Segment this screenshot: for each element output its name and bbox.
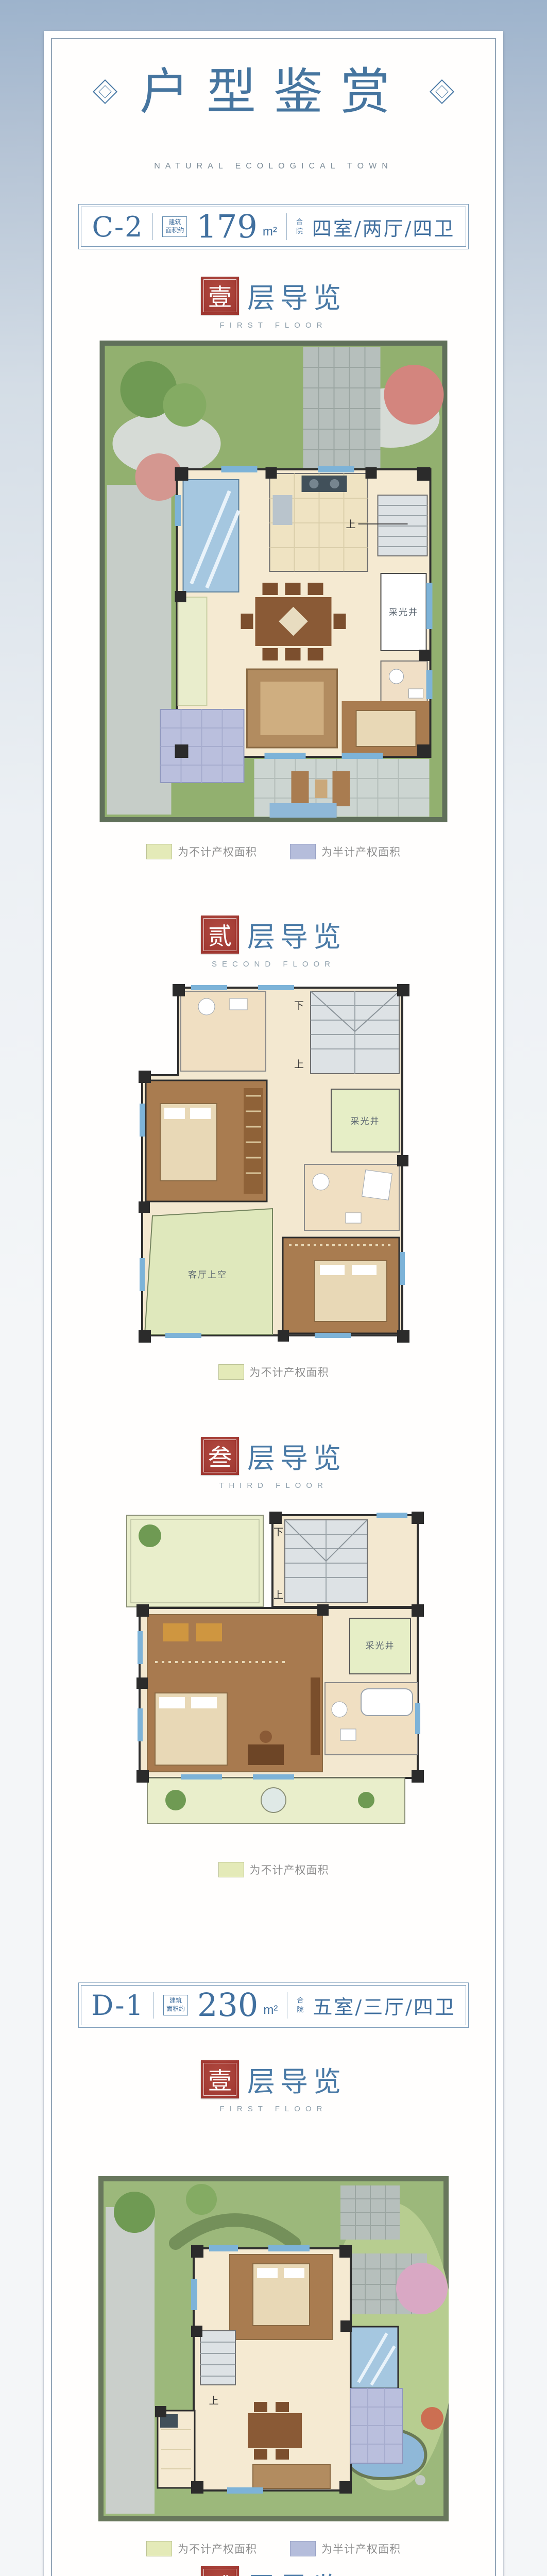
legend-c2-2: 为不计产权面积 xyxy=(52,1364,495,1380)
legend-c2-1: 为不计产权面积 为半计产权面积 xyxy=(52,844,495,859)
legend-item: 为半计产权面积 xyxy=(290,844,401,859)
divider xyxy=(287,1992,287,2019)
legend-item: 为不计产权面积 xyxy=(146,2541,257,2556)
diamond-icon xyxy=(430,79,454,104)
floor-plan-c2-3: 下 上 采光井 xyxy=(119,1507,428,1832)
area-unit: m² xyxy=(263,2003,278,2018)
stairs-up-label: 上 xyxy=(294,1059,304,1070)
area-prefix-box: 建筑 面积约 xyxy=(162,216,187,236)
floor-badge: 贰 xyxy=(201,2566,239,2576)
unit-category: 合 院 xyxy=(296,217,303,235)
light-well-label: 采光井 xyxy=(366,1641,395,1651)
floor-badge: 贰 xyxy=(201,916,239,954)
floor-title: 层导览 xyxy=(247,275,346,316)
page-subtitle: NATURAL ECOLOGICAL TOWN xyxy=(52,162,495,171)
stairs-up-label: 上 xyxy=(209,2395,218,2406)
legend-item: 为半计产权面积 xyxy=(290,2541,401,2556)
unit-category: 合 院 xyxy=(297,1996,303,2014)
floor-header-c2-1: 壹 层导览 FIRST FLOOR xyxy=(201,275,346,330)
legend-swatch xyxy=(146,2541,172,2556)
divider xyxy=(153,1992,154,2019)
page-title-row: 户型鉴赏 xyxy=(52,55,495,129)
brochure-card: 户型鉴赏 NATURAL ECOLOGICAL TOWN C-2 建筑 面积约 … xyxy=(44,31,503,2576)
floor-subtitle: FIRST FLOOR xyxy=(220,2105,328,2113)
floor-plan-c2-1: 上 采光井 xyxy=(100,341,448,822)
floor-plan-c2-2: 下 上 采光井 客厅上空 xyxy=(129,980,418,1348)
unit-name: C-2 xyxy=(92,211,144,243)
unit-name: D-1 xyxy=(91,1989,144,2022)
legend-item: 为不计产权面积 xyxy=(218,1364,329,1380)
page-title: 户型鉴赏 xyxy=(140,55,407,129)
floor-header-d1-2: 贰 层导览 SECOND FLOOR xyxy=(201,2565,346,2576)
legend-swatch xyxy=(290,2541,316,2556)
area-prefix-line1: 建筑 xyxy=(169,1997,182,2005)
divider xyxy=(152,213,153,240)
light-well-label: 采光井 xyxy=(351,1116,380,1126)
floor-title: 层导览 xyxy=(247,914,346,955)
floor-subtitle: SECOND FLOOR xyxy=(212,960,335,969)
area-value: 230 xyxy=(197,1989,258,2021)
legend-d1-1: 为不计产权面积 为半计产权面积 xyxy=(52,2541,495,2556)
legend-item: 为不计产权面积 xyxy=(218,1862,329,1877)
floor-title: 层导览 xyxy=(247,2059,346,2099)
floor-badge: 壹 xyxy=(201,277,239,315)
legend-item: 为不计产权面积 xyxy=(146,844,257,859)
floor-header-d1-1: 壹 层导览 FIRST FLOOR xyxy=(201,2059,346,2113)
stairs-up-label: 上 xyxy=(273,1589,283,1601)
legend-swatch xyxy=(218,1364,244,1380)
floor-badge: 叁 xyxy=(201,1437,239,1475)
area-prefix-box: 建筑 面积约 xyxy=(163,1995,188,2015)
unit-header-d1: D-1 建筑 面积约 230 m² 合 院 五室/三厅/四卫 xyxy=(78,1982,469,2028)
void-label: 客厅上空 xyxy=(188,1270,227,1280)
floor-header-c2-3: 叁 层导览 THIRD FLOOR xyxy=(201,1435,346,1490)
unit-rooms: 五室/三厅/四卫 xyxy=(313,1991,456,2020)
stairs-up-label: 上 xyxy=(346,519,356,530)
floor-subtitle: FIRST FLOOR xyxy=(220,321,328,330)
area-prefix-line1: 建筑 xyxy=(168,218,181,227)
legend-c2-3: 为不计产权面积 xyxy=(52,1862,495,1877)
area-prefix-line2: 面积约 xyxy=(166,2005,185,2013)
floor-subtitle: THIRD FLOOR xyxy=(219,1481,328,1490)
legend-swatch xyxy=(218,1862,244,1877)
legend-swatch xyxy=(146,844,172,859)
floor-badge: 壹 xyxy=(201,2060,239,2098)
unit-rooms: 四室/两厅/四卫 xyxy=(312,213,455,241)
stairs-down-label: 下 xyxy=(273,1527,283,1538)
floor-title: 层导览 xyxy=(247,1435,346,1476)
page-background: 户型鉴赏 NATURAL ECOLOGICAL TOWN C-2 建筑 面积约 … xyxy=(0,0,547,2576)
diamond-icon xyxy=(93,79,117,104)
area-unit: m² xyxy=(263,225,277,239)
floor-header-c2-2: 贰 层导览 SECOND FLOOR xyxy=(201,914,346,969)
unit-header-c2: C-2 建筑 面积约 179 m² 合 院 四室/两厅/四卫 xyxy=(78,204,469,249)
area-value: 179 xyxy=(196,211,257,243)
area-prefix-line2: 面积约 xyxy=(165,227,184,235)
divider xyxy=(286,213,287,240)
floor-title: 层导览 xyxy=(247,2565,346,2576)
stairs-down-label: 下 xyxy=(294,1001,304,1011)
floor-plan-d1-1: 上 xyxy=(98,2176,449,2521)
light-well-label: 采光井 xyxy=(389,607,418,617)
legend-swatch xyxy=(290,844,316,859)
